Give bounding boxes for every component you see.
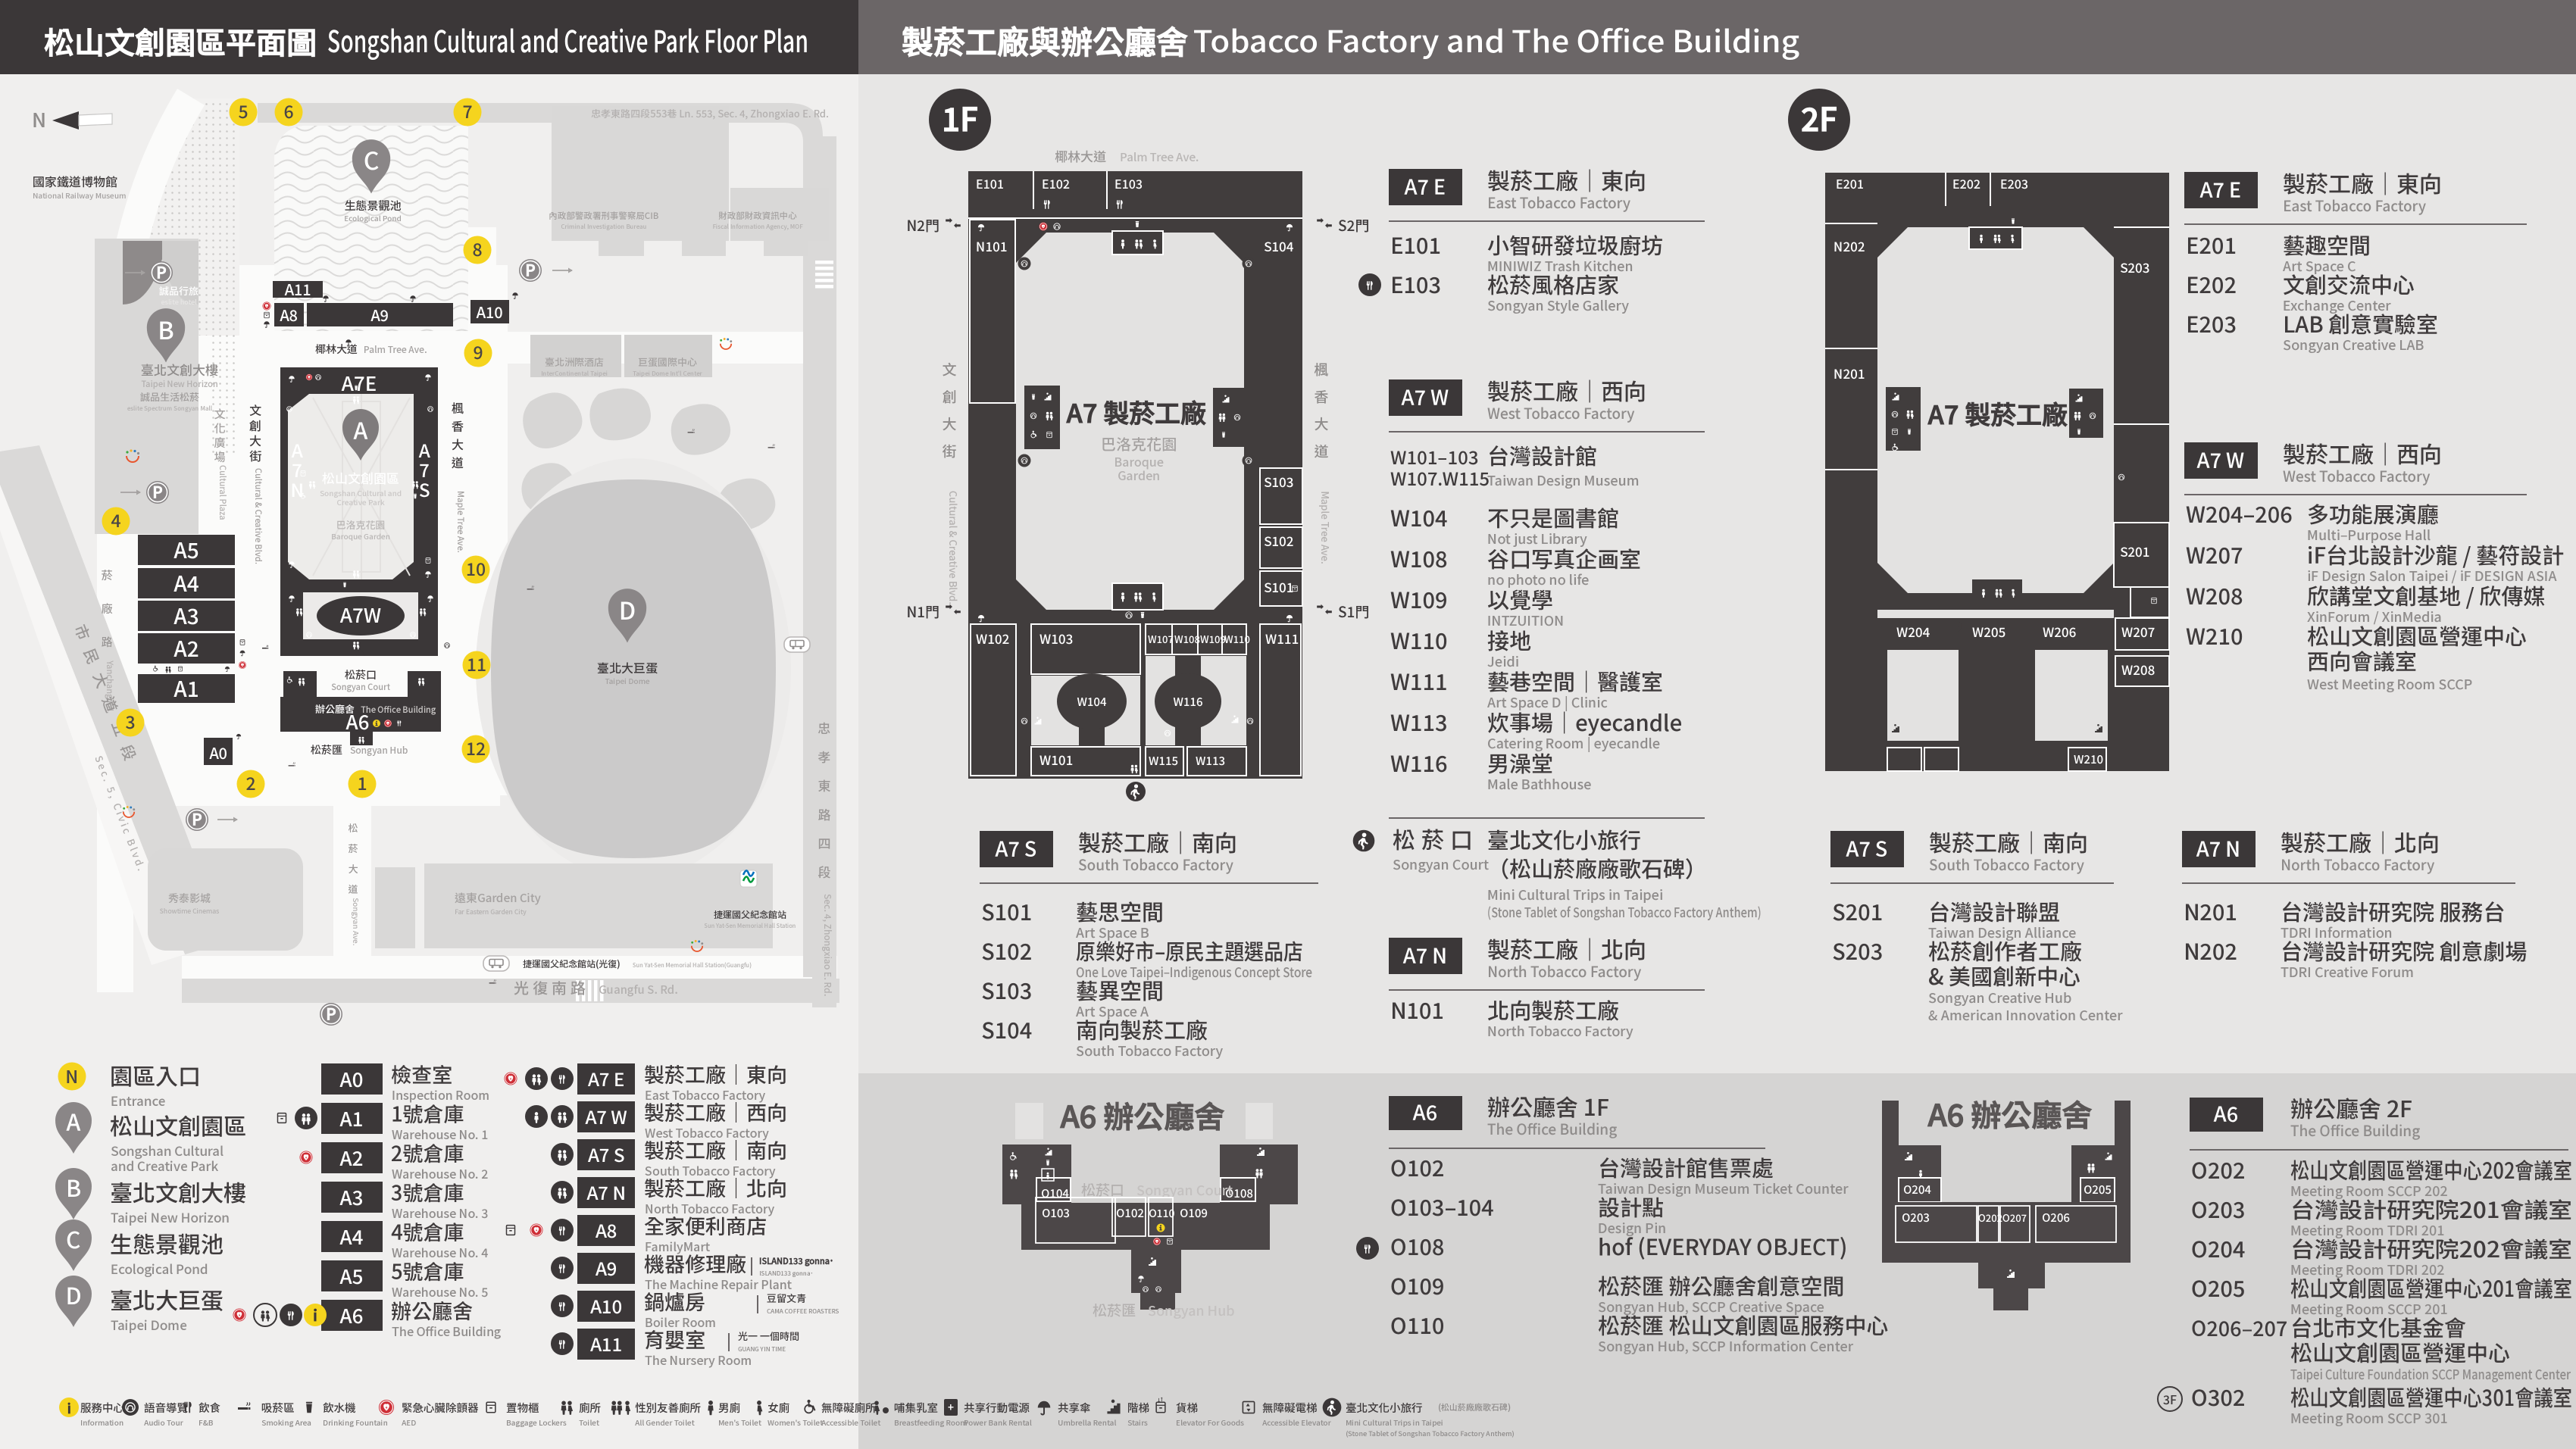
svg-text:C: C	[66, 1222, 80, 1255]
svg-text:N202: N202	[1834, 236, 1865, 255]
svg-text:Taipei Dome: Taipei Dome	[111, 1315, 187, 1334]
svg-text:E203: E203	[2000, 174, 2028, 192]
svg-text:6: 6	[283, 98, 293, 123]
svg-text:W104: W104	[1077, 694, 1107, 710]
svg-text:Songyan Creative LAB: Songyan Creative LAB	[2283, 335, 2424, 354]
svg-text:園區入口: 園區入口	[110, 1058, 201, 1091]
svg-text:Songyan Style Gallery: Songyan Style Gallery	[1487, 295, 1629, 315]
svg-text:O110: O110	[1149, 1206, 1175, 1221]
svg-text:S: S	[419, 476, 430, 502]
svg-text:Criminal Investigation Bureau: Criminal Investigation Bureau	[561, 223, 646, 231]
svg-text:A0: A0	[209, 742, 227, 764]
svg-text:A10: A10	[476, 301, 502, 323]
svg-text:巴洛克花園: 巴洛克花園	[1101, 433, 1177, 454]
svg-text:臺北文創大樓: 臺北文創大樓	[110, 1175, 246, 1208]
svg-text:文創大街: 文創大街	[249, 401, 261, 464]
svg-text:N: N	[66, 1063, 79, 1088]
svg-text:松菸口: 松菸口	[1081, 1179, 1124, 1200]
svg-text:Songshan Cultural and Creative: Songshan Cultural and Creative Park Floo…	[327, 17, 808, 61]
svg-text:ISLAND133 gonna˙: ISLAND133 gonna˙	[759, 1255, 834, 1267]
svg-text:i: i	[67, 1398, 70, 1418]
svg-text:Meeting Room SCCP 301: Meeting Room SCCP 301	[2290, 1408, 2448, 1428]
svg-text:South Tobacco Factory: South Tobacco Factory	[1076, 1041, 1223, 1060]
svg-text:A3: A3	[174, 601, 199, 631]
svg-text:O202: O202	[1978, 1210, 2002, 1225]
svg-text:E103: E103	[1390, 268, 1441, 300]
svg-text:F&B: F&B	[199, 1416, 213, 1428]
svg-text:2F: 2F	[1801, 95, 1837, 141]
svg-text:W210: W210	[2074, 751, 2103, 767]
svg-text:A7W: A7W	[340, 601, 381, 629]
svg-text:性別友善廁所: 性別友善廁所	[635, 1400, 701, 1416]
svg-text:辦公廳舍: 辦公廳舍	[391, 1295, 473, 1325]
svg-text:捷運國父紀念館站(光復): 捷運國父紀念館站(光復)	[523, 957, 621, 970]
svg-text:辦公廳舍 2F: 辦公廳舍 2F	[2290, 1091, 2412, 1124]
svg-text:A1: A1	[340, 1104, 364, 1132]
svg-text:松山文創園區: 松山文創園區	[322, 468, 399, 487]
svg-text:Ecological Pond: Ecological Pond	[111, 1259, 208, 1278]
svg-text:A7 E: A7 E	[587, 1065, 624, 1091]
svg-text:松山文創園區: 松山文創園區	[110, 1108, 246, 1141]
svg-text:女廁: 女廁	[767, 1400, 789, 1416]
svg-text:Entrance: Entrance	[111, 1091, 165, 1110]
svg-text:O109: O109	[1180, 1205, 1208, 1221]
svg-text:辦公廳舍 1F: 辦公廳舍 1F	[1487, 1089, 1609, 1123]
svg-text:Garden: Garden	[1118, 466, 1160, 484]
svg-text:hof (EVERYDAY OBJECT): hof (EVERYDAY OBJECT)	[1598, 1230, 1847, 1262]
svg-text:E201: E201	[2186, 229, 2237, 261]
svg-text:B: B	[66, 1170, 81, 1204]
svg-text:飲水機: 飲水機	[323, 1400, 356, 1416]
svg-text:8: 8	[472, 236, 482, 261]
svg-text:臺北文創大樓: 臺北文創大樓	[141, 360, 218, 379]
svg-text:忠孝東路四段553巷 Ln. 553, Sec. 4, Z: 忠孝東路四段553巷 Ln. 553, Sec. 4, Zhongxiao E.…	[591, 106, 829, 120]
svg-text:Toilet: Toilet	[579, 1416, 599, 1428]
svg-text:製菸工廠｜北向: 製菸工廠｜北向	[1487, 932, 1646, 965]
svg-text:A7E: A7E	[342, 369, 377, 397]
svg-text:Palm Tree Ave.: Palm Tree Ave.	[1120, 149, 1199, 165]
svg-text:臺北大巨蛋: 臺北大巨蛋	[597, 658, 658, 676]
svg-text:Cultural & Creative Blvd.: Cultural & Creative Blvd.	[946, 491, 961, 604]
svg-text:E201: E201	[1836, 174, 1864, 192]
svg-text:W207: W207	[2186, 539, 2243, 570]
svg-text:The Office Building: The Office Building	[361, 704, 436, 716]
svg-text:A6 辦公廳舍: A6 辦公廳舍	[1060, 1093, 1226, 1137]
svg-text:ISLAND133 gonna˙: ISLAND133 gonna˙	[759, 1269, 814, 1278]
svg-text:The Office Building: The Office Building	[392, 1322, 501, 1340]
svg-text:松山文創園區平面圖: 松山文創園區平面圖	[44, 19, 317, 63]
svg-text:West Tobacco Factory: West Tobacco Factory	[2283, 466, 2431, 486]
svg-text:5號倉庫: 5號倉庫	[391, 1256, 464, 1285]
svg-text:松菸匯: 松菸匯	[1093, 1300, 1136, 1320]
svg-text:內政部警政署刑事警察局CIB: 內政部警政署刑事警察局CIB	[549, 210, 658, 222]
svg-text:W111: W111	[1265, 629, 1299, 648]
svg-text:W116: W116	[1173, 694, 1202, 710]
svg-text:Songyan Ave.: Songyan Ave.	[351, 898, 362, 946]
svg-text:光復南路: 光復南路	[514, 976, 589, 998]
svg-text:Ecological Pond: Ecological Pond	[344, 212, 402, 223]
svg-text:Showtime Cinemas: Showtime Cinemas	[160, 907, 220, 916]
svg-text:Mini Cultural Trips in Taipei: Mini Cultural Trips in Taipei	[1346, 1416, 1443, 1428]
svg-text:N201: N201	[2184, 895, 2237, 927]
svg-text:男廁: 男廁	[718, 1400, 740, 1416]
svg-text:South Tobacco Factory: South Tobacco Factory	[1078, 854, 1234, 875]
svg-text:Songyan Hub: Songyan Hub	[350, 744, 408, 757]
svg-text:CAMA COFFEE ROASTERS: CAMA COFFEE ROASTERS	[767, 1307, 839, 1316]
svg-text:W108: W108	[1174, 632, 1200, 646]
svg-text:The Office Building: The Office Building	[1487, 1119, 1617, 1139]
svg-text:製菸工廠｜東向: 製菸工廠｜東向	[1487, 163, 1646, 196]
svg-text:O203: O203	[1902, 1210, 1930, 1226]
svg-text:財政部財政資訊中心: 財政部財政資訊中心	[718, 210, 797, 222]
svg-text:E102: E102	[1042, 174, 1070, 192]
svg-text:W207: W207	[2121, 622, 2155, 641]
svg-text:O108: O108	[1390, 1230, 1444, 1262]
svg-text:3: 3	[125, 708, 135, 734]
svg-text:W115: W115	[1149, 753, 1178, 769]
svg-text:E101: E101	[976, 174, 1004, 192]
svg-text:National Railway Museum: National Railway Museum	[33, 189, 126, 201]
svg-text:O205: O205	[2084, 1182, 2112, 1198]
svg-text:語音導覽: 語音導覽	[144, 1400, 188, 1416]
svg-text:Guangfu S. Rd.: Guangfu S. Rd.	[599, 982, 678, 998]
svg-text:W204: W204	[1896, 622, 1930, 641]
svg-text:W107.W115: W107.W115	[1390, 464, 1490, 491]
svg-text:W110: W110	[1390, 624, 1448, 656]
svg-text:W210: W210	[2186, 620, 2243, 651]
svg-text:A: A	[353, 413, 368, 446]
svg-text:1: 1	[357, 770, 367, 795]
svg-text:Power Bank Rental: Power Bank Rental	[964, 1416, 1032, 1428]
svg-text:巨蛋國際中心: 巨蛋國際中心	[638, 354, 697, 369]
svg-text:Songyan Hub: Songyan Hub	[1148, 1301, 1235, 1320]
svg-text:椰林大道: 椰林大道	[1055, 146, 1106, 165]
svg-text:W109: W109	[1390, 583, 1448, 615]
svg-text:D: D	[619, 592, 636, 627]
svg-text:O302: O302	[2191, 1381, 2245, 1413]
svg-text:遠東Garden City: 遠東Garden City	[455, 890, 541, 906]
svg-text:A: A	[66, 1104, 81, 1138]
svg-text:+: +	[948, 1400, 954, 1415]
svg-text:S101: S101	[981, 895, 1032, 927]
svg-text:A7 E: A7 E	[1405, 171, 1446, 201]
svg-text:哺集乳室: 哺集乳室	[894, 1400, 938, 1416]
svg-text:椰林大道: 椰林大道	[315, 342, 358, 357]
svg-text:West Meeting Room SCCP: West Meeting Room SCCP	[2307, 674, 2473, 694]
svg-text:製菸工廠｜東向: 製菸工廠｜東向	[644, 1059, 787, 1088]
svg-text:A7 N: A7 N	[1403, 940, 1447, 970]
svg-text:O103: O103	[1042, 1205, 1070, 1221]
svg-text:O102: O102	[1390, 1151, 1444, 1183]
svg-text:O109: O109	[1390, 1269, 1444, 1301]
svg-text:A5: A5	[174, 535, 199, 565]
svg-text:O205: O205	[2191, 1272, 2245, 1304]
svg-text:Taipei Dome: Taipei Dome	[605, 675, 649, 686]
svg-text:& American Innovation Center: & American Innovation Center	[1928, 1005, 2123, 1025]
svg-text:臺北洲際酒店: 臺北洲際酒店	[545, 354, 604, 369]
svg-text:A6: A6	[346, 707, 370, 735]
svg-text:D: D	[66, 1278, 82, 1311]
svg-text:製菸工廠｜西向: 製菸工廠｜西向	[644, 1097, 787, 1126]
svg-text:3號倉庫: 3號倉庫	[391, 1177, 464, 1207]
svg-text:製菸工廠｜西向: 製菸工廠｜西向	[1487, 373, 1646, 407]
svg-text:A7 S: A7 S	[996, 833, 1037, 863]
svg-text:Cultural & Creative Blvd.: Cultural & Creative Blvd.	[252, 468, 264, 564]
svg-text:AED: AED	[402, 1416, 416, 1428]
svg-text:A4: A4	[174, 568, 199, 598]
svg-text:2號倉庫: 2號倉庫	[391, 1138, 464, 1167]
svg-text:無障礙電梯: 無障礙電梯	[1262, 1400, 1318, 1416]
svg-text:North Tobacco Factory: North Tobacco Factory	[1487, 961, 1642, 982]
svg-text:S1門: S1門	[1338, 601, 1369, 622]
svg-text:East Tobacco Factory: East Tobacco Factory	[1487, 192, 1631, 213]
svg-text:North Tobacco Factory: North Tobacco Factory	[2281, 854, 2435, 875]
svg-text:(Stone Tablet of Songshan Toba: (Stone Tablet of Songshan Tobacco Factor…	[1346, 1429, 1515, 1438]
svg-text:貨梯: 貨梯	[1176, 1400, 1198, 1416]
svg-text:W113: W113	[1196, 753, 1225, 769]
svg-text:A2: A2	[174, 633, 199, 664]
svg-text:N101: N101	[1390, 994, 1444, 1026]
svg-text:7: 7	[462, 98, 472, 123]
svg-text:S201: S201	[1832, 895, 1883, 927]
svg-text:S203: S203	[2120, 258, 2149, 276]
svg-text:Taipei New Horizon: Taipei New Horizon	[141, 378, 218, 390]
svg-text:4: 4	[111, 507, 120, 532]
svg-text:W208: W208	[2186, 579, 2243, 611]
svg-text:共享行動電源: 共享行動電源	[964, 1400, 1030, 1416]
svg-text:階梯: 階梯	[1127, 1400, 1149, 1416]
svg-text:A10: A10	[589, 1292, 622, 1319]
svg-text:Stairs: Stairs	[1127, 1416, 1148, 1428]
svg-text:W116: W116	[1390, 747, 1448, 779]
svg-text:A7 製菸工廠: A7 製菸工廠	[1927, 395, 2068, 432]
svg-text:N2門: N2門	[906, 215, 939, 236]
svg-text:A6 辦公廳舍: A6 辦公廳舍	[1927, 1091, 2093, 1135]
svg-text:Maple Tree Ave.: Maple Tree Ave.	[455, 491, 467, 553]
svg-text:文化廣場: 文化廣場	[214, 406, 225, 465]
svg-text:A1: A1	[174, 673, 199, 704]
svg-text:松菸口: 松菸口	[345, 667, 377, 682]
svg-text:1號倉庫: 1號倉庫	[391, 1098, 464, 1128]
svg-text:S104: S104	[1264, 236, 1294, 255]
svg-text:O207: O207	[2002, 1210, 2027, 1225]
svg-text:5: 5	[238, 98, 248, 123]
svg-text:A5: A5	[340, 1262, 364, 1290]
svg-text:秀泰影城: 秀泰影城	[168, 891, 211, 906]
svg-text:eslite hotel: eslite hotel	[161, 297, 197, 307]
svg-text:臺北大巨蛋: 臺北大巨蛋	[110, 1282, 224, 1316]
svg-text:S102: S102	[981, 935, 1032, 967]
svg-text:S102: S102	[1264, 531, 1293, 550]
svg-text:光一 一個時間: 光一 一個時間	[738, 1329, 799, 1343]
svg-text:O110: O110	[1390, 1309, 1444, 1341]
svg-text:Sec. 4, Zhongxiao E. Rd.: Sec. 4, Zhongxiao E. Rd.	[821, 894, 834, 996]
svg-text:製菸工廠｜南向: 製菸工廠｜南向	[644, 1135, 787, 1164]
svg-text:The Office Building: The Office Building	[2290, 1120, 2420, 1141]
svg-text:Taipei Dome Int'l Center: Taipei Dome Int'l Center	[633, 370, 703, 378]
svg-text:N202: N202	[2184, 935, 2237, 967]
svg-text:12: 12	[466, 735, 486, 760]
svg-text:S104: S104	[981, 1013, 1032, 1045]
svg-text:A0: A0	[340, 1065, 364, 1093]
svg-text:4號倉庫: 4號倉庫	[391, 1216, 464, 1246]
svg-text:A11: A11	[284, 278, 311, 300]
svg-text:Baggage Lockers: Baggage Lockers	[506, 1416, 567, 1428]
svg-text:W204–206: W204–206	[2186, 498, 2293, 529]
svg-text:W103: W103	[1039, 629, 1073, 648]
svg-text:A8: A8	[595, 1216, 617, 1243]
svg-text:W206: W206	[2043, 622, 2076, 641]
svg-text:臺北文化小旅行: 臺北文化小旅行	[1346, 1400, 1423, 1416]
svg-text:A7 N: A7 N	[2196, 833, 2240, 863]
svg-text:Far Eastern Garden City: Far Eastern Garden City	[455, 907, 527, 917]
svg-text:製菸工廠｜南向: 製菸工廠｜南向	[1078, 825, 1237, 858]
svg-text:製菸工廠｜北向: 製菸工廠｜北向	[2281, 825, 2440, 858]
svg-text:W113: W113	[1390, 706, 1448, 738]
svg-text:A3: A3	[340, 1183, 364, 1211]
svg-text:O202: O202	[2191, 1154, 2245, 1185]
svg-text:Cultural Plaza: Cultural Plaza	[217, 465, 229, 520]
svg-text:O102: O102	[1116, 1205, 1144, 1221]
svg-text:捷運國父紀念館站: 捷運國父紀念館站	[714, 908, 786, 921]
svg-text:廁所: 廁所	[579, 1400, 601, 1416]
svg-text:N201: N201	[1834, 364, 1865, 383]
svg-text:製菸工廠與辦公廳舍: 製菸工廠與辦公廳舍	[901, 17, 1189, 64]
svg-text:East Tobacco Factory: East Tobacco Factory	[2283, 195, 2427, 216]
svg-text:& 美國創新中心: & 美國創新中心	[1928, 960, 2080, 992]
svg-text:N: N	[32, 105, 46, 133]
svg-text:S203: S203	[1832, 935, 1883, 967]
svg-text:C: C	[364, 142, 380, 177]
svg-text:W205: W205	[1972, 622, 2005, 641]
svg-text:N101: N101	[976, 236, 1008, 255]
svg-text:W107: W107	[1148, 632, 1174, 646]
svg-text:育嬰室: 育嬰室	[644, 1324, 705, 1354]
svg-text:國家鐵道博物館: 國家鐵道博物館	[33, 172, 117, 190]
svg-text:台灣設計館: 台灣設計館	[1487, 439, 1597, 471]
svg-text:3F: 3F	[2163, 1390, 2177, 1408]
svg-text:A7 S: A7 S	[587, 1141, 625, 1167]
svg-text:S2門: S2門	[1338, 215, 1369, 236]
svg-text:Fiscal Information Agency, MOF: Fiscal Information Agency, MOF	[712, 223, 803, 231]
svg-text:S103: S103	[1264, 472, 1293, 491]
svg-text:A9: A9	[595, 1254, 617, 1281]
svg-text:W108: W108	[1390, 542, 1448, 574]
svg-text:Audio Tour: Audio Tour	[144, 1416, 184, 1428]
svg-text:E103: E103	[1114, 174, 1143, 192]
svg-text:Information: Information	[80, 1416, 123, 1428]
svg-text:無障礙廁所: 無障礙廁所	[821, 1400, 877, 1416]
svg-text:豆留文青: 豆留文青	[767, 1291, 806, 1305]
svg-text:Songyan Court: Songyan Court	[1136, 1180, 1233, 1200]
svg-text:A7 S: A7 S	[1846, 833, 1888, 863]
svg-text:West Tobacco Factory: West Tobacco Factory	[1487, 403, 1635, 423]
svg-text:O206–207: O206–207	[2191, 1313, 2287, 1342]
svg-text:11: 11	[467, 651, 486, 676]
svg-text:1F: 1F	[942, 95, 978, 141]
svg-text:臺北文化小旅行: 臺北文化小旅行	[1487, 823, 1641, 855]
svg-text:E202: E202	[2186, 268, 2237, 300]
svg-text:A7 E: A7 E	[2200, 174, 2241, 204]
svg-text:製菸工廠｜東向: 製菸工廠｜東向	[2283, 166, 2442, 199]
svg-text:A7 W: A7 W	[2197, 445, 2244, 474]
svg-text:製菸工廠｜北向: 製菸工廠｜北向	[644, 1173, 787, 1202]
svg-text:Men's Toilet: Men's Toilet	[718, 1416, 761, 1428]
svg-text:E202: E202	[1952, 174, 1980, 192]
svg-text:North Tobacco Factory: North Tobacco Factory	[1487, 1021, 1633, 1041]
svg-text:A6: A6	[1413, 1097, 1437, 1126]
svg-text:Accessible Elevator: Accessible Elevator	[1262, 1416, 1332, 1428]
svg-text:Women's Toilet: Women's Toilet	[767, 1416, 823, 1428]
svg-text:A6: A6	[2214, 1098, 2238, 1128]
svg-text:O204: O204	[2191, 1232, 2245, 1264]
svg-text:A9: A9	[370, 304, 389, 326]
svg-text:松菸口: 松菸口	[1393, 822, 1479, 855]
svg-text:2: 2	[245, 770, 255, 795]
svg-text:生態景觀池: 生態景觀池	[110, 1226, 224, 1260]
svg-text:檢查室: 檢查室	[391, 1059, 452, 1088]
svg-text:(松山菸廠廠歌石碑): (松山菸廠廠歌石碑)	[1438, 1401, 1511, 1413]
svg-text:W111: W111	[1390, 665, 1448, 697]
svg-text:A7 N: A7 N	[586, 1179, 626, 1205]
svg-text:製菸工廠｜西向: 製菸工廠｜西向	[2283, 436, 2442, 470]
svg-text:Male Bathhouse: Male Bathhouse	[1487, 774, 1592, 794]
svg-text:緊急心臟除顫器: 緊急心臟除顫器	[402, 1400, 479, 1416]
svg-text:誠品行旅: 誠品行旅	[159, 283, 199, 298]
svg-text:誠品生活松菸: 誠品生活松菸	[140, 389, 199, 404]
svg-text:A8: A8	[280, 304, 298, 326]
svg-text:Accessible Toilet: Accessible Toilet	[821, 1416, 880, 1428]
svg-text:O103–104: O103–104	[1390, 1191, 1494, 1223]
svg-text:菸廠路: 菸廠路	[101, 567, 112, 650]
svg-text:鍋爐房: 鍋爐房	[644, 1286, 705, 1316]
svg-text:(Stone Tablet of Songshan Toba: (Stone Tablet of Songshan Tobacco Factor…	[1487, 902, 1762, 922]
svg-text:Creative Park: Creative Park	[336, 496, 384, 507]
svg-text:eslite Spectrum Songyan Mall: eslite Spectrum Songyan Mall	[127, 404, 213, 413]
svg-text:W101: W101	[1039, 750, 1073, 769]
svg-text:吸菸區: 吸菸區	[261, 1400, 295, 1416]
svg-text:O204: O204	[1903, 1182, 1931, 1198]
svg-text:W208: W208	[2121, 660, 2155, 679]
svg-text:Taipei New Horizon: Taipei New Horizon	[111, 1207, 230, 1226]
svg-text:A7 W: A7 W	[1402, 382, 1449, 411]
svg-text:W110: W110	[1224, 632, 1250, 646]
svg-text:W104: W104	[1390, 501, 1448, 533]
svg-text:A6: A6	[340, 1301, 364, 1329]
svg-text:A2: A2	[340, 1144, 364, 1172]
svg-text:Taiwan Design Museum: Taiwan Design Museum	[1487, 470, 1640, 490]
svg-text:Umbrella Rental: Umbrella Rental	[1058, 1416, 1116, 1428]
svg-text:A4: A4	[340, 1223, 364, 1251]
svg-text:Drinking Fountain: Drinking Fountain	[323, 1416, 388, 1428]
svg-text:服務中心: 服務中心	[80, 1400, 124, 1416]
svg-text:Palm Tree Ave.: Palm Tree Ave.	[364, 343, 427, 356]
svg-text:Sun Yat-Sen Memorial Hall Stat: Sun Yat-Sen Memorial Hall Station(Guangf…	[633, 961, 752, 970]
svg-text:S101: S101	[1264, 577, 1293, 596]
svg-text:松山文創園區營運中心: 松山文創園區營運中心	[2290, 1336, 2510, 1368]
svg-text:Tobacco Factory and The Office: Tobacco Factory and The Office Building	[1193, 17, 1799, 61]
svg-text:西向會議室: 西向會議室	[2307, 645, 2417, 676]
svg-text:O206: O206	[2042, 1210, 2070, 1226]
svg-text:松菸匯: 松菸匯	[311, 742, 342, 757]
svg-text:Songyan Hub, SCCP Information: Songyan Hub, SCCP Information Center	[1598, 1336, 1854, 1356]
svg-text:E203: E203	[2186, 308, 2237, 339]
svg-text:Maple Tree Ave.: Maple Tree Ave.	[1318, 491, 1333, 564]
svg-text:（松山菸廠廠歌石碑）: （松山菸廠廠歌石碑）	[1487, 852, 1707, 884]
svg-text:Breastfeeding Room: Breastfeeding Room	[894, 1416, 968, 1428]
svg-text:Smoking Area: Smoking Area	[261, 1416, 311, 1428]
svg-text:Songyan Court: Songyan Court	[1393, 854, 1490, 874]
